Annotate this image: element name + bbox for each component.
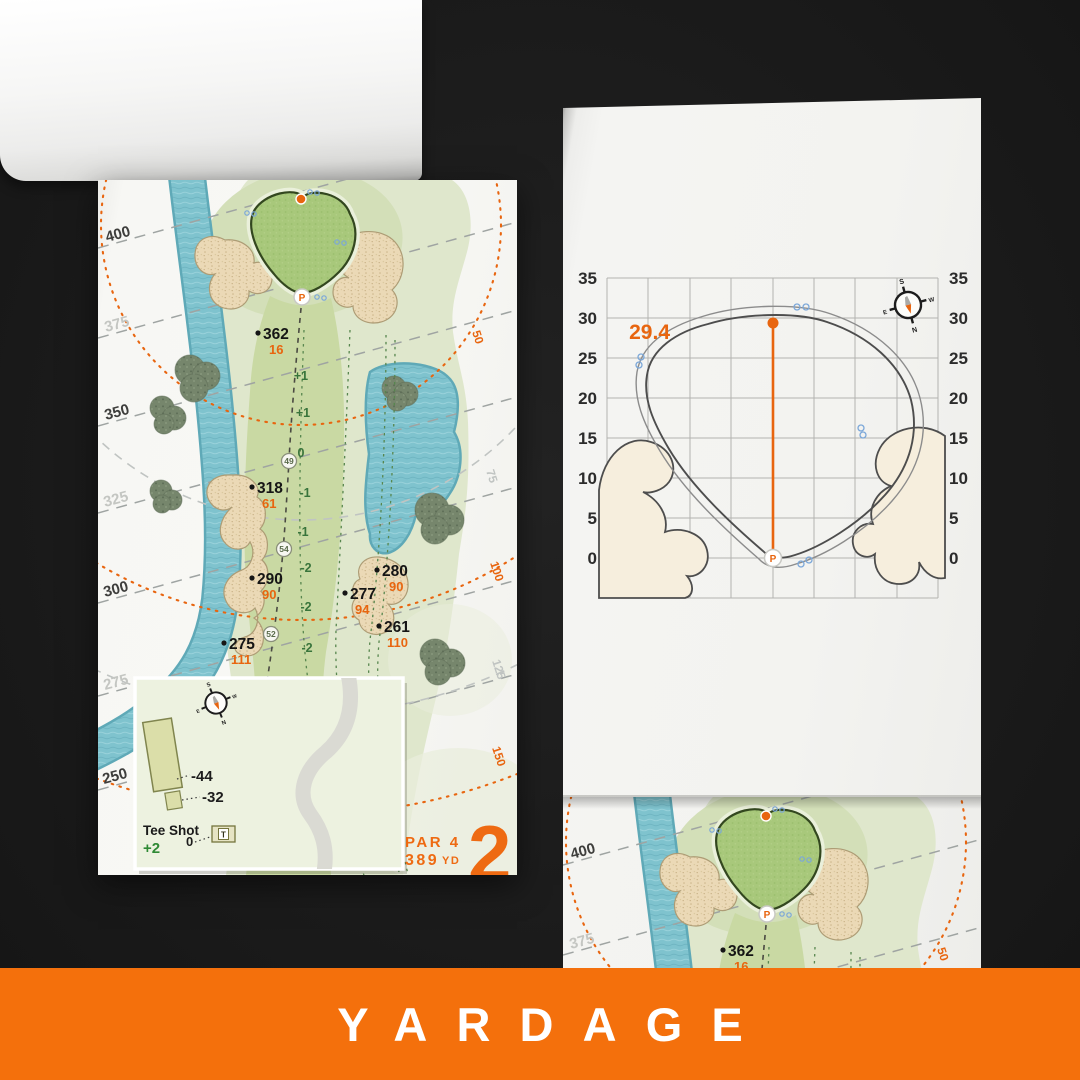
tick-label: 5 xyxy=(949,509,958,528)
hole-map-page xyxy=(98,180,517,875)
tick-label: 0 xyxy=(588,549,597,568)
sprinkler-icons xyxy=(636,304,866,567)
tick-label: 10 xyxy=(578,469,597,488)
tick-label: 15 xyxy=(949,429,968,448)
tick-label: 30 xyxy=(949,309,968,328)
tick-label: 35 xyxy=(578,269,597,288)
axis-ticks-left: 35 30 25 20 15 10 5 0 xyxy=(578,269,597,568)
banner-label: YARDAGE xyxy=(308,997,772,1052)
green-detail-page: P 35 30 25 20 15 10 5 0 35 3 xyxy=(563,98,981,968)
yardage-banner: YARDAGE xyxy=(0,968,1080,1080)
tick-label: 25 xyxy=(578,349,597,368)
hole-map-svg xyxy=(98,180,517,875)
tick-label: 5 xyxy=(588,509,597,528)
pin-marker: P xyxy=(765,550,782,567)
tick-label: 20 xyxy=(949,389,968,408)
tick-label: 10 xyxy=(949,469,968,488)
next-page-hole-map-svg xyxy=(563,797,981,968)
page-curl xyxy=(0,0,422,181)
tick-label: 25 xyxy=(949,349,968,368)
tick-label: 20 xyxy=(578,389,597,408)
pin-label: P xyxy=(770,554,777,565)
green-detail-svg: P 35 30 25 20 15 10 5 0 35 3 xyxy=(563,98,981,798)
depth-dot xyxy=(768,318,779,329)
tick-label: 0 xyxy=(949,549,958,568)
green-depth-value: 29.4 xyxy=(629,321,670,344)
yardage-book-spread: P 35 30 25 20 15 10 5 0 35 3 xyxy=(0,0,1080,1080)
tick-label: 35 xyxy=(949,269,968,288)
tick-label: 15 xyxy=(578,429,597,448)
axis-ticks-right: 35 30 25 20 15 10 5 0 xyxy=(949,269,968,568)
page-fold-edge xyxy=(563,795,981,797)
tick-label: 30 xyxy=(578,309,597,328)
